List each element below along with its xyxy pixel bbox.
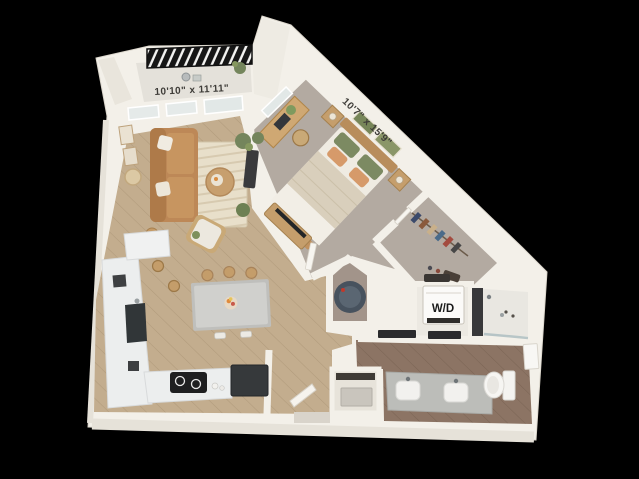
- balcony-chair: [182, 73, 190, 81]
- towel-hook-1: [504, 310, 507, 313]
- vanity: [386, 372, 492, 414]
- window-pane-2: [166, 101, 197, 116]
- island-stool-2: [223, 266, 235, 278]
- art-frame-1: [119, 125, 134, 145]
- sink-right: [444, 383, 468, 402]
- coffee-maker: [112, 274, 126, 287]
- island-stool-3: [246, 267, 258, 279]
- kitchen-sink: [125, 303, 147, 343]
- shower-drain: [500, 313, 504, 317]
- sofa-cushion-2: [167, 177, 194, 218]
- floor-plan-render: 10'10" x 11'11": [0, 0, 639, 479]
- art-frame-2: [123, 147, 138, 166]
- island-stool-5: [240, 331, 251, 338]
- toilet-seat: [487, 376, 499, 394]
- shower-head: [487, 295, 491, 299]
- window-pane-1: [128, 105, 159, 120]
- sink-left: [396, 381, 420, 400]
- faucet-right: [454, 379, 458, 383]
- refrigerator: [231, 365, 268, 396]
- toilet-tank: [503, 371, 515, 400]
- entry-threshold: [294, 412, 330, 423]
- shoe: [436, 269, 440, 273]
- washer-dryer-base: [427, 318, 460, 323]
- bedroom-plant-1: [286, 105, 296, 115]
- cooktop: [170, 372, 207, 393]
- bar-stool-2: [169, 281, 180, 292]
- tray-item: [214, 177, 218, 181]
- balcony-plant-leaf: [232, 61, 238, 67]
- bedroom-plant-2: [252, 132, 264, 144]
- faucet-left: [406, 377, 410, 381]
- balcony-table: [193, 75, 201, 81]
- shoe: [428, 266, 432, 270]
- mirror-right: [428, 331, 461, 339]
- bar-stool-1: [153, 261, 164, 272]
- utility-closet: [334, 281, 366, 313]
- toilet: [484, 371, 515, 400]
- shower-tile-accent: [472, 288, 483, 336]
- island-stool-4: [214, 332, 225, 339]
- woven-wall-hanging: [125, 169, 141, 185]
- canister: [220, 386, 225, 391]
- trash-bin: [128, 361, 139, 371]
- towel-hook-2: [511, 314, 514, 317]
- wall-cabinet: [523, 344, 539, 370]
- coat-closet-rod: [336, 373, 375, 380]
- living-plant-2: [236, 203, 250, 217]
- sofa: [150, 128, 198, 222]
- balcony-door-pane: [204, 96, 243, 114]
- island-stool-1: [202, 269, 214, 281]
- floor-plan-stage: 10'10" x 11'11": [0, 0, 639, 479]
- living-plant-3: [192, 231, 200, 239]
- laundry-shelf: [424, 274, 450, 282]
- kitchen-cabinet-upper: [124, 230, 170, 260]
- water-heater-valve: [341, 288, 345, 292]
- mirror-left: [378, 330, 416, 338]
- living-plant-1b: [245, 143, 253, 151]
- sofa-pillow-2: [155, 181, 171, 197]
- coffee-table: [206, 168, 234, 196]
- washer-dryer-label: W/D: [432, 303, 454, 315]
- kitchen-faucet: [135, 299, 140, 304]
- washer-dryer-unit: W/D: [423, 286, 464, 324]
- coat-closet-shelf: [341, 388, 372, 406]
- kettle: [212, 383, 218, 389]
